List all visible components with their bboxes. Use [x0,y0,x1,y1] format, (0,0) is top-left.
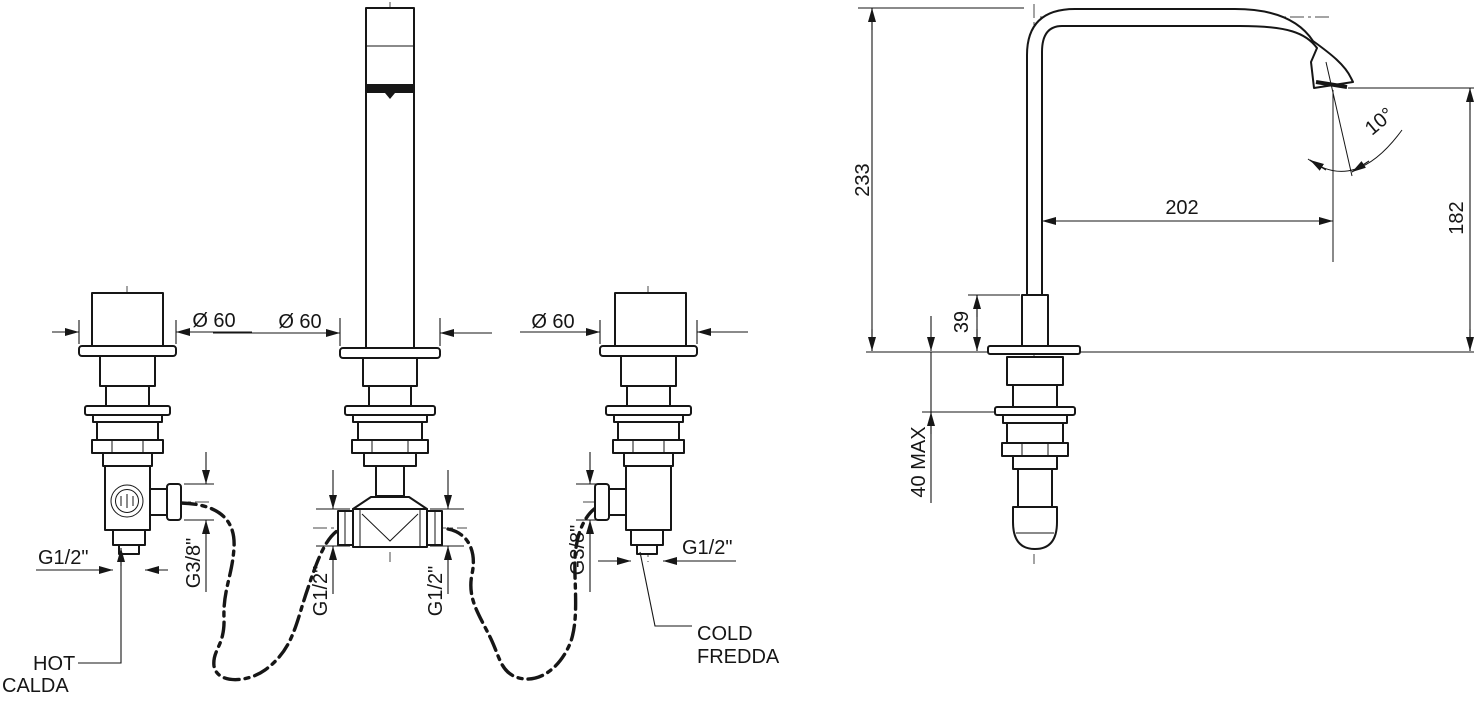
hot-side-port-neck [150,489,167,515]
cold-side-port-neck [609,489,626,515]
dim-label-39: 39 [951,311,973,333]
hot-label: HOT [33,653,75,675]
calda-label: CALDA [2,675,69,697]
leader-line [78,560,121,663]
faucet-technical-drawing: Ø 60 Ø 60 Ø 60 G1/2" G3/8" G1/2" [0,0,1478,707]
centerlines [127,2,1330,564]
dim-label-g38-cold: G3/8" [567,525,589,575]
hot-shank-cylinder [97,422,158,440]
hot-body-upper [100,356,155,386]
side-base-cylinder [1022,295,1048,347]
dim-label-10deg: 10° [1361,104,1398,140]
spout-column [366,8,414,348]
dim-label-202: 202 [1165,197,1198,219]
hot-locknut [92,440,163,453]
spout-shank-cylinder [358,422,422,440]
dim-label-g12-hot: G1/2" [38,547,88,569]
cold-valve-body [626,466,671,530]
side-washer-flange [995,407,1075,415]
cold-side-port-flange [595,484,609,520]
tee-shoulder [353,497,427,509]
spout-body-step [369,386,411,406]
side-shank-cylinder [1007,423,1063,443]
spout-washer-flange [345,406,435,415]
cold-escutcheon [600,346,697,356]
dim-label-g12-tee-left: G1/2" [310,566,332,616]
dim-label-dia60-hot: Ø 60 [192,310,235,332]
dim-label-233: 233 [852,163,874,196]
dim-233: 233 [852,8,1024,351]
hot-washer-lower [93,415,162,422]
leader-line [640,552,692,626]
cold-label: COLD [697,623,753,645]
dim-40max: 40 MAX [908,316,996,503]
side-body-upper [1007,357,1063,385]
hot-bottom-port [113,530,145,545]
spout-aerator-band [367,84,413,93]
dim-label-g12-tee-right: G1/2" [425,566,447,616]
cold-handle-knob [615,293,686,346]
dim-39: 39 [951,295,1020,351]
cold-valve-assembly [595,293,697,554]
dim-202: 202 [1042,197,1333,221]
cold-washer-flange [606,406,691,415]
cold-shank-cylinder [618,422,679,440]
dim-label-g12-cold: G1/2" [682,537,732,559]
side-deck-escutcheon [988,346,1080,354]
hot-side-port-flange [167,484,181,520]
cold-washer-lower [614,415,683,422]
hot-handle-knob [92,293,163,346]
dim-label-40max: 40 MAX [908,426,930,497]
cold-thread-section [624,453,673,466]
hot-body-step [106,386,149,406]
dim-label-dia60-cold: Ø 60 [531,311,574,333]
cold-body-step [627,386,670,406]
cold-body-upper [621,356,676,386]
hot-washer-flange [85,406,170,415]
tee-fitting [338,497,442,547]
spout-washer-lower [353,415,427,422]
dim-angle-10: 10° [1308,62,1402,262]
spout-body-upper [363,358,417,386]
spout-front-view [340,8,440,496]
dim-label-g38-hot: G3/8" [183,538,205,588]
cold-bottom-port [631,530,663,545]
dim-arrow [1310,160,1326,170]
dim-g12-cold: G1/2" [598,537,736,561]
spout-deck-escutcheon [340,348,440,358]
side-view [866,9,1474,549]
spout-locknut [352,440,428,453]
dim-g38-hot: G3/8" [183,452,214,592]
angle-arc [1308,130,1402,171]
side-lower-body [1018,469,1052,507]
fredda-label: FREDDA [697,646,780,668]
cold-locknut [613,440,684,453]
hot-escutcheon [79,346,176,356]
cold-supply-callout: COLD FREDDA [640,552,780,668]
dim-g12-hot: G1/2" [36,547,168,570]
spout-thread-section [364,453,416,466]
dim-arrow [1352,161,1369,172]
side-bottom-dome [1013,507,1057,549]
hot-thread-section [103,453,152,466]
dim-dia60-spout: Ø 60 [213,311,492,346]
spout-inlet-pipe [376,466,404,496]
side-washer-lower [1003,415,1067,423]
hot-valve-assembly [79,293,181,554]
side-thread-section [1013,456,1057,469]
dim-label-dia60-spout: Ø 60 [278,311,321,333]
technical-drawing-canvas: Ø 60 Ø 60 Ø 60 G1/2" G3/8" G1/2" [0,0,1478,707]
spout-side-profile [1027,9,1353,295]
side-locknut [1002,443,1068,456]
dim-label-182: 182 [1446,201,1468,234]
side-body-step [1013,385,1057,407]
hot-bottom-tip [119,545,139,554]
